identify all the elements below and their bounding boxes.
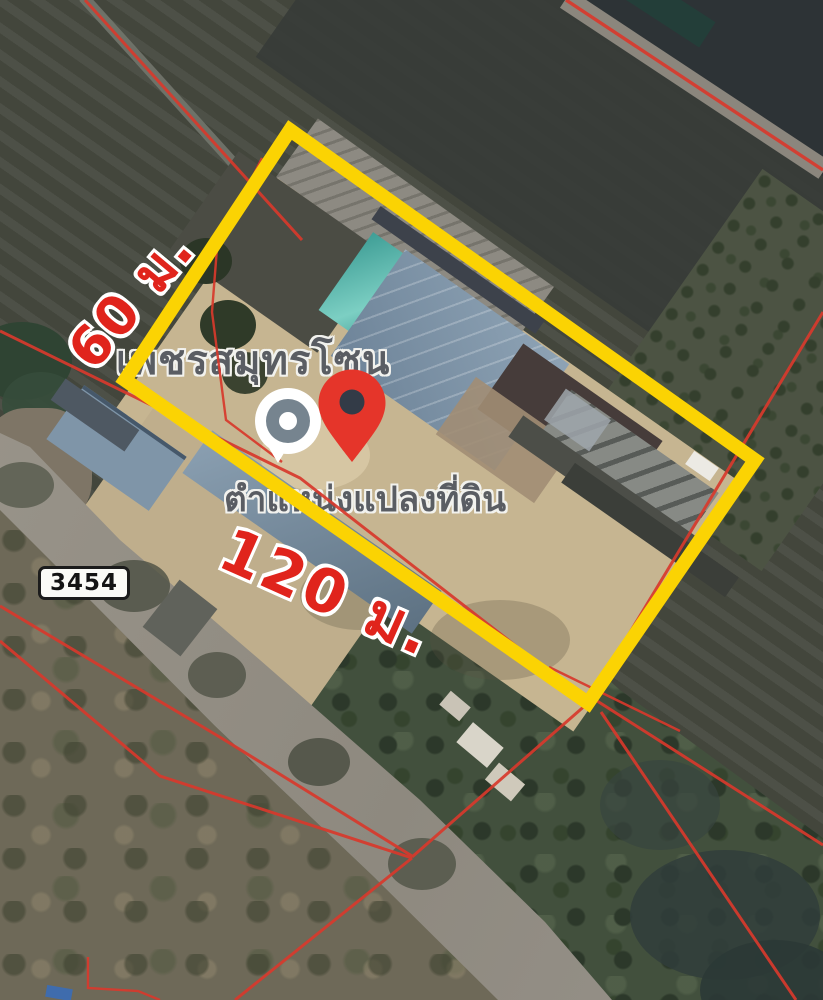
- satellite-map[interactable]: เพชรสมุทรโซน ตำแหน่งแปลงที่ดิน 3454: [0, 0, 823, 1000]
- overlay-lines: [0, 0, 823, 1000]
- poi-marker[interactable]: [252, 385, 324, 473]
- parcel-line: [85, 0, 302, 240]
- parcel-line: [594, 699, 823, 845]
- parcel-line: [566, 0, 823, 170]
- parcel-line: [412, 703, 588, 857]
- parcel-line: [235, 858, 412, 1000]
- poi-dot: [279, 412, 297, 430]
- parcel-line: [88, 957, 160, 1000]
- parcel-line: [601, 712, 796, 1000]
- parcel-boundary-lines: [0, 0, 823, 1000]
- parcel-line: [0, 641, 412, 858]
